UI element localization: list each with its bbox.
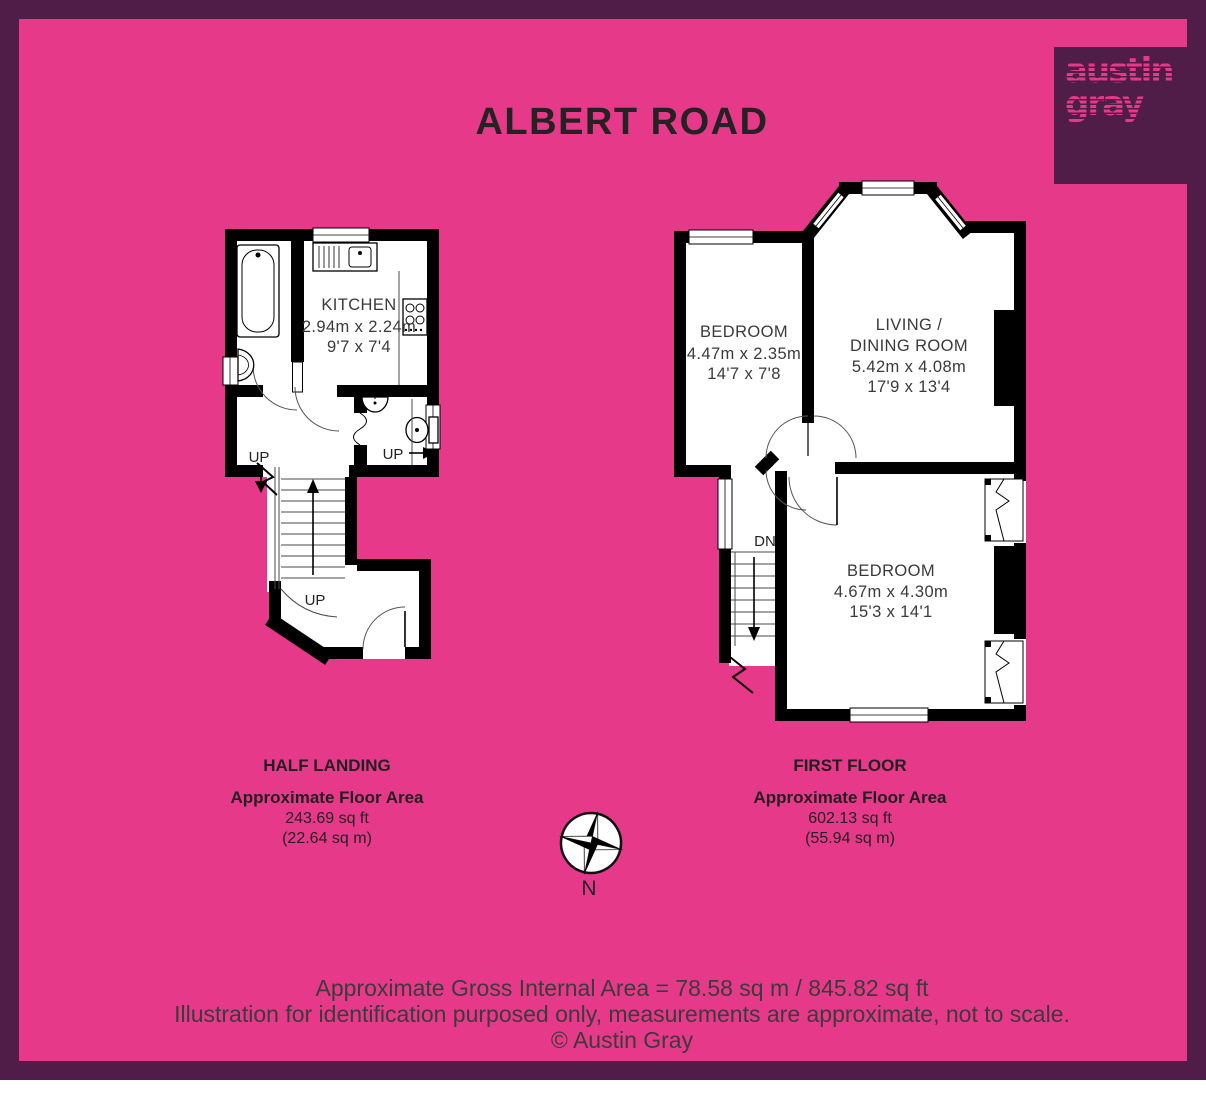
first-floor-area-heading: Approximate Floor Area bbox=[720, 787, 980, 808]
living-metric: 5.42m x 4.08m bbox=[852, 358, 966, 376]
half-landing-caption: HALF LANDING Approximate Floor Area 243.… bbox=[197, 755, 457, 849]
floor-plan-svg: KITCHEN 2.94m x 2.24m 9'7 x 7'4 UP UP UP bbox=[19, 19, 1206, 1099]
bedroom-back-label: BEDROOM bbox=[847, 562, 935, 580]
first-floor-landing bbox=[719, 414, 841, 478]
first-floor-plan: BEDROOM 4.47m x 2.35m 14'7 x 7'8 LIVING … bbox=[674, 181, 1026, 722]
living-imperial: 17'9 x 13'4 bbox=[867, 378, 950, 396]
living-label-2: DINING ROOM bbox=[850, 337, 968, 355]
first-floor-caption: FIRST FLOOR Approximate Floor Area 602.1… bbox=[720, 755, 980, 849]
up-label-stairs: UP bbox=[305, 592, 326, 609]
footer-disclaimer: Approximate Gross Internal Area = 78.58 … bbox=[19, 975, 1206, 1053]
first-floor-title: FIRST FLOOR bbox=[720, 755, 980, 776]
footer-line-disclaimer: Illustration for identification purposed… bbox=[19, 1001, 1206, 1027]
kitchen-tap bbox=[358, 251, 362, 255]
half-landing-area-sqft: 243.69 sq ft bbox=[197, 809, 457, 829]
bathroom-door-leaf bbox=[293, 362, 303, 392]
bathroom-window bbox=[223, 357, 238, 385]
kitchen-imperial: 9'7 x 7'4 bbox=[327, 338, 391, 356]
bedroom-back-metric: 4.67m x 4.30m bbox=[834, 583, 948, 601]
up-label-wc: UP bbox=[383, 446, 404, 463]
bedroom-front-imperial: 14'7 x 7'8 bbox=[707, 365, 781, 383]
first-floor-area-sqm: (55.94 sq m) bbox=[720, 829, 980, 849]
living-label-1: LIVING / bbox=[876, 316, 942, 334]
bedroom-back-imperial: 15'3 x 14'1 bbox=[849, 603, 932, 621]
half-landing-title: HALF LANDING bbox=[197, 755, 457, 776]
alcove-window-upper bbox=[985, 479, 1023, 541]
chimney-breast-bedroom bbox=[994, 546, 1015, 634]
half-landing-area-sqm: (22.64 sq m) bbox=[197, 829, 457, 849]
up-label-hall: UP bbox=[249, 449, 270, 466]
footer-line-copyright: © Austin Gray bbox=[19, 1027, 1206, 1053]
half-landing-plan: KITCHEN 2.94m x 2.24m 9'7 x 7'4 UP UP UP bbox=[223, 228, 440, 659]
alcove-window-lower bbox=[985, 641, 1023, 703]
bedroom-front-label: BEDROOM bbox=[700, 323, 788, 341]
bath-tap bbox=[256, 253, 261, 258]
footer-line-gross-area: Approximate Gross Internal Area = 78.58 … bbox=[19, 975, 1206, 1001]
floorplan-page: ALBERT ROAD austin gray bbox=[0, 0, 1206, 1080]
kitchen-metric: 2.94m x 2.24m bbox=[302, 318, 416, 336]
chimney-breast-living bbox=[994, 310, 1015, 406]
first-floor-area-sqft: 602.13 sq ft bbox=[720, 809, 980, 829]
bedroom-front-metric: 4.47m x 2.35m bbox=[687, 345, 801, 363]
toilet-cistern bbox=[429, 417, 438, 443]
north-label: N bbox=[581, 877, 596, 900]
half-landing-area-heading: Approximate Floor Area bbox=[197, 787, 457, 808]
kitchen-label: KITCHEN bbox=[321, 296, 396, 314]
dn-label: DN bbox=[754, 533, 776, 550]
compass-rose: N bbox=[553, 805, 629, 900]
